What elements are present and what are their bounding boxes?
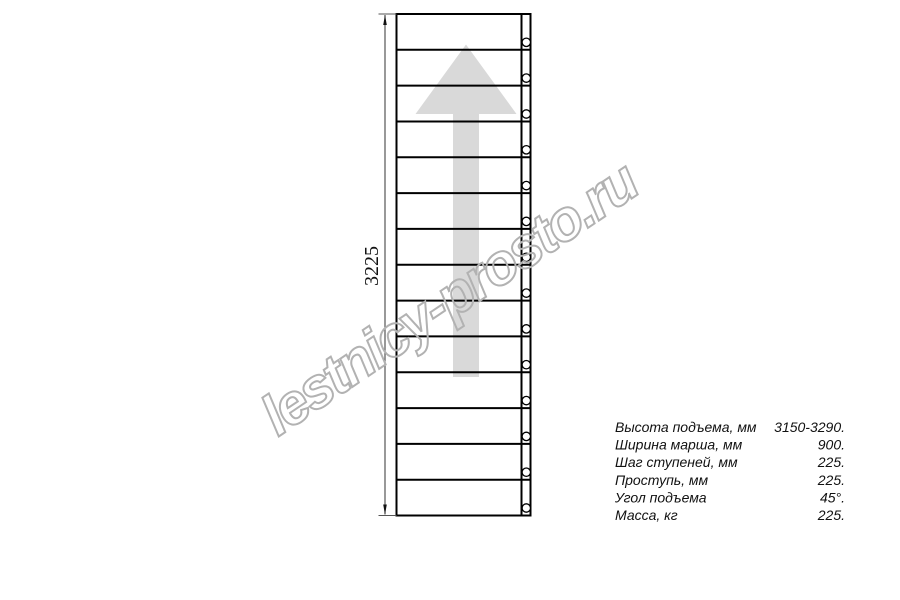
svg-text:45°.: 45°.: [820, 489, 845, 505]
svg-text:900.: 900.: [818, 437, 845, 453]
svg-text:Высота подъема, мм: Высота подъема, мм: [615, 419, 757, 435]
svg-text:225.: 225.: [817, 507, 845, 523]
svg-text:225.: 225.: [817, 472, 845, 488]
svg-text:3150-3290.: 3150-3290.: [774, 419, 845, 435]
svg-text:Масса, кг: Масса, кг: [615, 507, 678, 523]
svg-text:Угол подъема: Угол подъема: [614, 489, 707, 505]
svg-text:3225: 3225: [361, 246, 383, 286]
svg-text:225.: 225.: [817, 454, 845, 470]
svg-text:Шаг ступеней, мм: Шаг ступеней, мм: [615, 454, 738, 470]
svg-text:Ширина марша, мм: Ширина марша, мм: [615, 437, 743, 453]
svg-text:Проступь, мм: Проступь, мм: [615, 472, 709, 488]
